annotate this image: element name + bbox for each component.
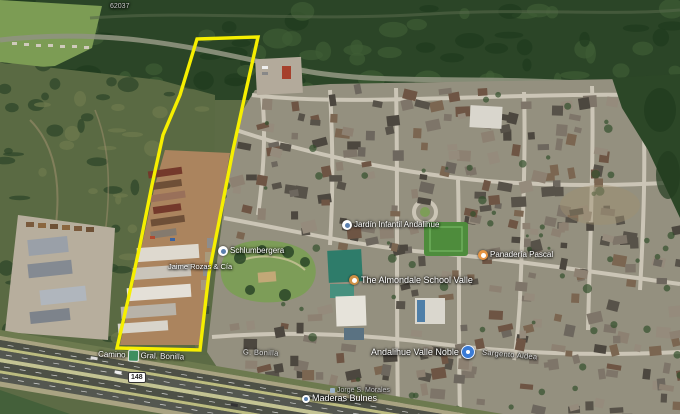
poi-label-school[interactable]: The Almondale School Valle (349, 275, 473, 285)
residential-complex-marker-icon[interactable] (461, 345, 475, 359)
pallets-yard-text: Jaime Rozas & Cía (168, 263, 232, 271)
street-label-bonilla: G. Bonilla (243, 348, 279, 357)
bakery-poi-icon (478, 250, 488, 260)
kindergarten-text: Jardín Infantil Andalihue (354, 221, 439, 229)
parcel-number-text: 62037 (110, 3, 129, 10)
poi-label-pallets-yard[interactable]: Jaime Rozas & Cía (168, 263, 232, 271)
route-shield-148: 148 (128, 372, 146, 383)
residential-complex-text: Andalihue Valle Noble (371, 348, 459, 357)
parcel-number-label: 62037 (110, 3, 129, 10)
poi-label-residential-complex[interactable]: Andalihue Valle Noble (371, 345, 475, 359)
poi-label-bakery[interactable]: Panadería Pascal (478, 250, 553, 260)
lumber-shop-poi-icon (302, 395, 310, 403)
poi-label-lumber-shop[interactable]: Maderas Bulnes (302, 394, 377, 403)
poi-label-kindergarten[interactable]: Jardín Infantil Andalihue (342, 220, 439, 230)
camino-name-text: Gral. Bonilla (140, 352, 184, 362)
route-shield-text: 148 (128, 372, 146, 383)
kindergarten-poi-icon (342, 220, 352, 230)
shop-poi-icon (218, 246, 228, 256)
camino-prefix-text: Camino (98, 350, 126, 359)
street-bonilla-text: G. Bonilla (243, 348, 279, 357)
poi-label-shop[interactable]: Schlumbergera (218, 246, 284, 256)
route-shield-green-icon (127, 350, 138, 362)
school-text: The Almondale School Valle (361, 276, 473, 285)
shop-poi-text: Schlumbergera (230, 247, 284, 255)
satellite-map[interactable]: 62037 Schlumbergera Jaime Rozas & Cía Ja… (0, 0, 680, 414)
bakery-text: Panadería Pascal (490, 251, 553, 259)
school-poi-icon (349, 275, 359, 285)
lumber-shop-text: Maderas Bulnes (312, 394, 377, 403)
